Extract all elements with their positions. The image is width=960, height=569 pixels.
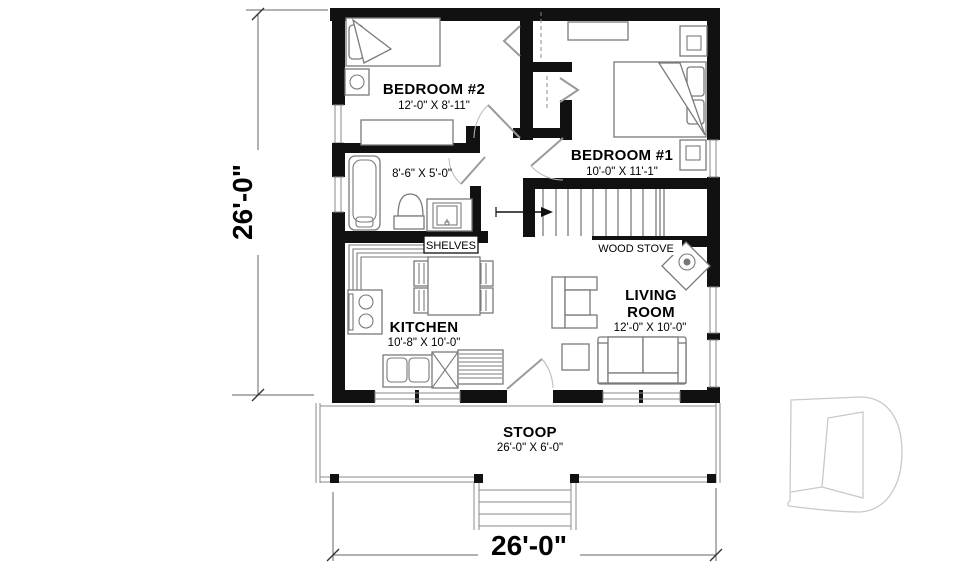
bed2-dresser	[361, 120, 453, 145]
armchair-back	[552, 277, 565, 328]
floor-plan-svg: BEDROOM #2 12'-0" X 8'-11" BEDROOM #1 10…	[0, 0, 960, 569]
sofa-arm	[598, 343, 608, 383]
entry-door	[507, 359, 542, 389]
armchair-seat	[565, 290, 590, 315]
stair-arrow-head	[541, 207, 553, 217]
stairs	[496, 189, 664, 236]
closet-bifold-door	[560, 78, 578, 102]
toilet-bowl	[398, 194, 423, 216]
kitchen-size: 10'-8" X 10'-0"	[388, 337, 461, 349]
bedroom2-label: BEDROOM #2	[383, 81, 485, 98]
armchair-arm	[565, 315, 597, 328]
bathtub	[349, 156, 380, 230]
railing-post	[330, 474, 339, 483]
closet-bifold-door	[504, 26, 520, 56]
shelves-label: SHELVES	[426, 240, 476, 252]
bed1-nightstand-top	[680, 26, 707, 56]
railing-post	[570, 474, 579, 483]
sofa-cushion	[643, 337, 678, 373]
overall-width-dimension: 26'-0"	[491, 530, 567, 561]
railing-post	[474, 474, 483, 483]
side-table	[562, 344, 589, 370]
d-logo-door	[822, 412, 863, 498]
closets	[504, 12, 578, 108]
living-room-label-line1: LIVING	[625, 287, 677, 304]
bedroom1-size: 10'-0" X 11'-1"	[586, 166, 658, 178]
bathroom-vanity	[427, 199, 472, 231]
armchair-arm	[565, 277, 597, 290]
sofa-front	[608, 373, 678, 383]
stoop-railing	[320, 477, 474, 482]
toilet-tank	[394, 216, 424, 229]
steps	[479, 490, 571, 526]
stoop-label: STOOP	[503, 424, 557, 441]
kitchen-table	[428, 257, 480, 315]
stoop-size: 26'-0" X 6'-0"	[497, 442, 563, 454]
kitchen-label: KITCHEN	[390, 319, 459, 336]
refrigerator	[458, 350, 503, 384]
bed2-nightstand	[345, 69, 369, 95]
floor-plan-page: BEDROOM #2 12'-0" X 8'-11" BEDROOM #1 10…	[0, 0, 960, 569]
overall-depth-dimension: 26'-0"	[227, 164, 258, 240]
bathroom-door	[461, 157, 485, 184]
bed1-nightstand-bottom	[680, 140, 706, 170]
wood-stove-flue-center	[684, 259, 691, 266]
bedroom1-door	[531, 138, 563, 166]
stoop-right-edge	[716, 403, 720, 483]
wood-stove-label: WOOD STOVE	[598, 243, 674, 255]
bedroom1-label: BEDROOM #1	[571, 147, 673, 164]
railing-post	[707, 474, 716, 483]
kitchen-fixtures	[348, 245, 503, 388]
d-logo-outer	[788, 397, 902, 512]
bedroom2-size: 12'-0" X 8'-11"	[398, 100, 470, 112]
drummond-d-logo	[788, 397, 902, 512]
sofa-cushion	[608, 337, 643, 373]
d-logo-floor-line	[791, 487, 822, 492]
bathroom-size: 8'-6" X 5'-0"	[392, 168, 452, 180]
living-room-label-line2: ROOM	[627, 304, 675, 321]
living-room-size: 12'-0" X 10'-0"	[614, 322, 687, 334]
stoop	[316, 403, 720, 530]
bedroom2-door	[488, 105, 520, 138]
bed1-dresser	[568, 22, 628, 40]
stoop-left-edge	[316, 403, 320, 483]
stoop-railing	[579, 477, 716, 482]
